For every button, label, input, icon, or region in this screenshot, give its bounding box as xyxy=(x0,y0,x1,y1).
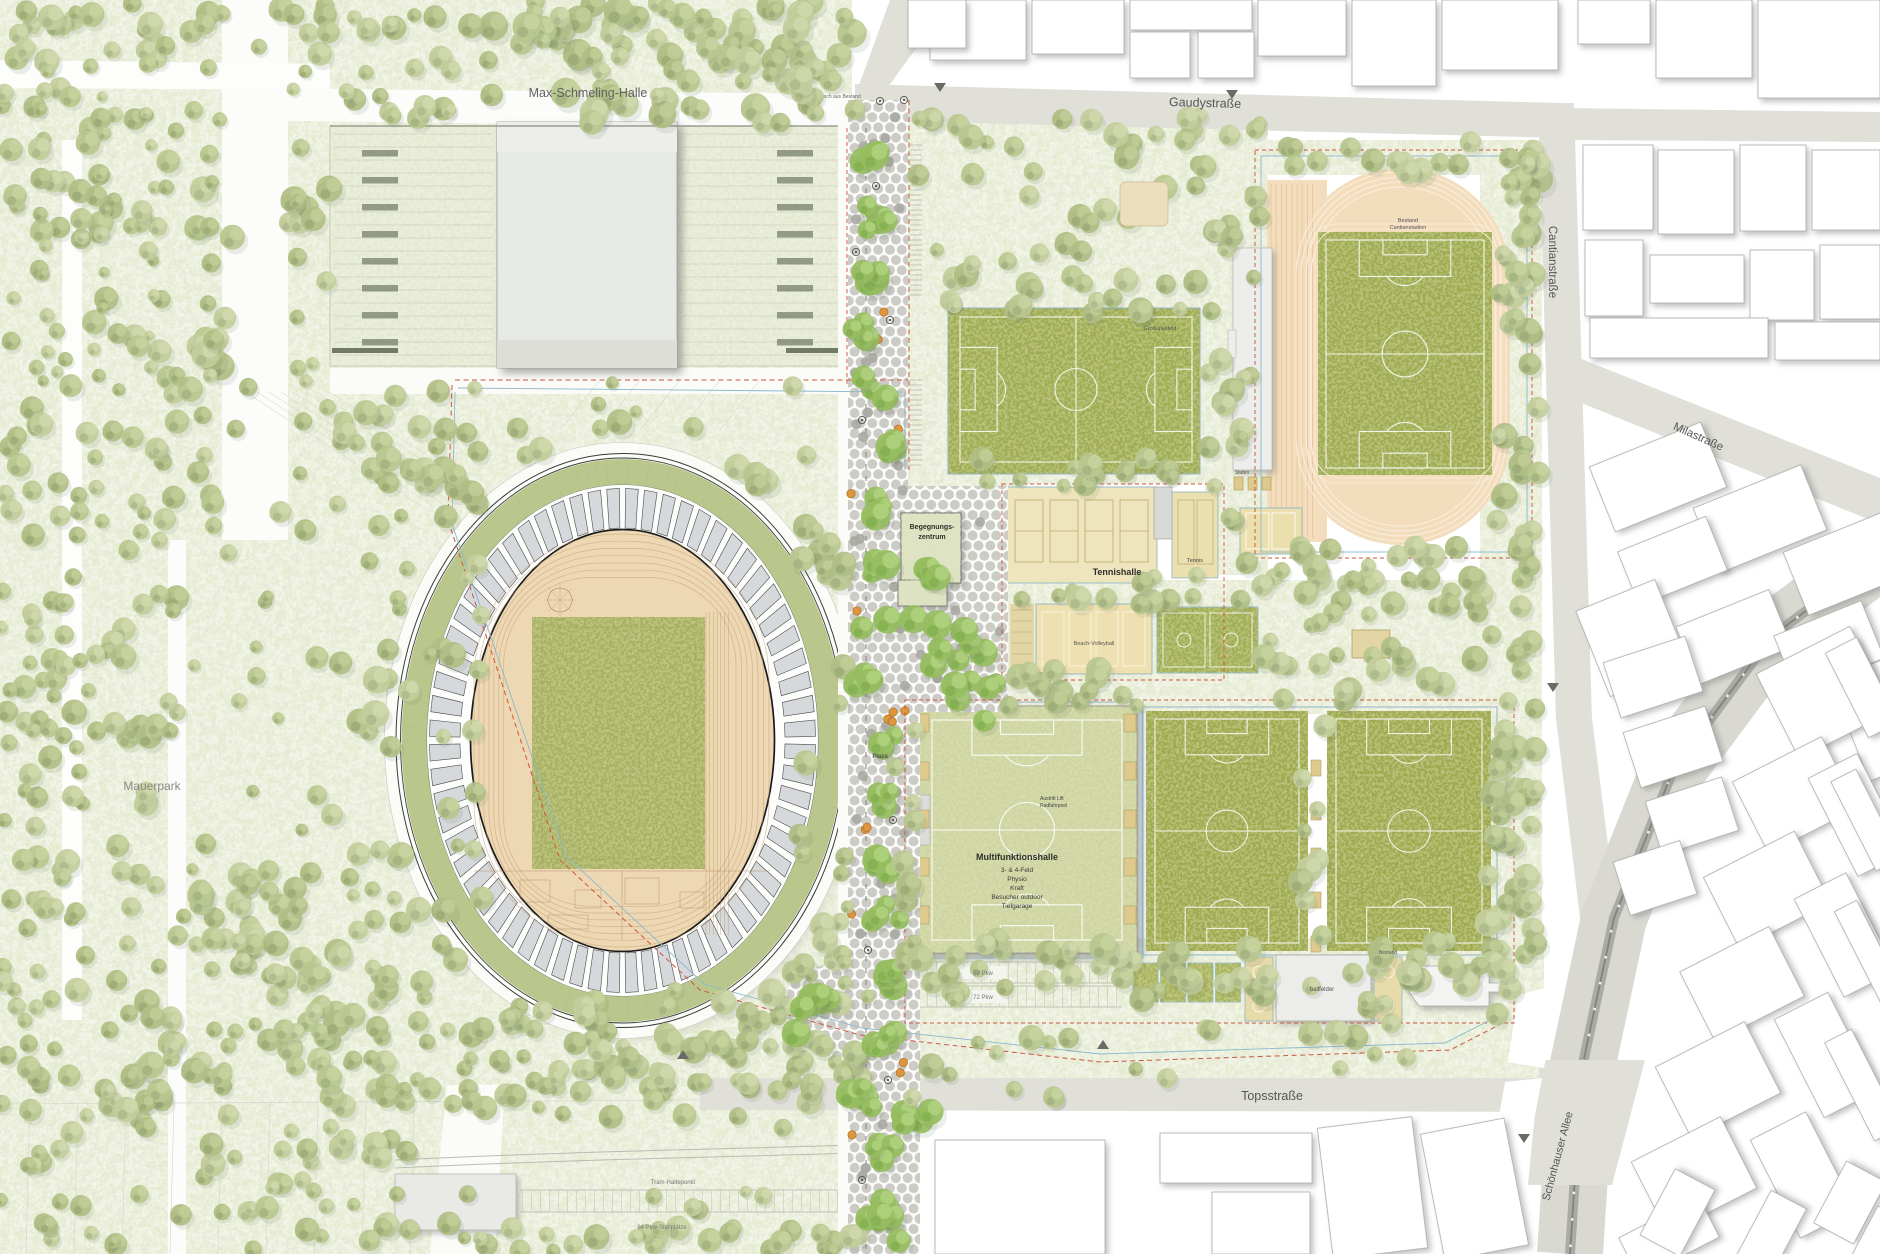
svg-text:Cantianstraße: Cantianstraße xyxy=(1546,226,1558,298)
svg-text:Tennishalle: Tennishalle xyxy=(1093,567,1142,577)
svg-text:Mauerpark: Mauerpark xyxy=(123,779,181,793)
svg-text:Bestand: Bestand xyxy=(1398,218,1418,224)
svg-text:3- & 4-Feld: 3- & 4-Feld xyxy=(1001,867,1034,874)
svg-text:Gaudystraße: Gaudystraße xyxy=(1169,95,1242,111)
svg-text:Besucher outdoor: Besucher outdoor xyxy=(991,894,1043,901)
svg-text:Beach-Volleyball: Beach-Volleyball xyxy=(1074,641,1115,647)
svg-text:Kraft: Kraft xyxy=(1010,885,1024,892)
svg-text:zentrum: zentrum xyxy=(918,534,945,541)
svg-text:Tennis: Tennis xyxy=(1187,558,1203,564)
svg-text:Plaza: Plaza xyxy=(872,754,888,760)
svg-text:Großspielfeld: Großspielfeld xyxy=(1144,326,1177,332)
svg-text:ballfelder: ballfelder xyxy=(1310,987,1334,993)
svg-text:59 Pkw: 59 Pkw xyxy=(973,971,993,977)
svg-text:Bestand: Bestand xyxy=(1379,950,1398,956)
svg-text:Tiefgarage: Tiefgarage xyxy=(1002,903,1033,910)
svg-text:Stufen: Stufen xyxy=(1235,470,1250,476)
svg-text:Max-Schmeling-Halle: Max-Schmeling-Halle xyxy=(529,86,648,100)
svg-text:Multifunktionshalle: Multifunktionshalle xyxy=(976,852,1058,862)
svg-text:Topsstraße: Topsstraße xyxy=(1241,1089,1303,1103)
svg-text:Radfahrpool: Radfahrpool xyxy=(1040,803,1067,809)
svg-text:72 Pkw: 72 Pkw xyxy=(973,995,993,1001)
svg-text:Tram-Haltepunkt: Tram-Haltepunkt xyxy=(651,1180,696,1186)
svg-text:Begegnungs-: Begegnungs- xyxy=(910,524,955,531)
svg-text:Cantianstadion: Cantianstadion xyxy=(1390,225,1427,231)
svg-text:84 Pkw-Stellplätze: 84 Pkw-Stellplätze xyxy=(637,1225,687,1231)
svg-text:Physio: Physio xyxy=(1007,876,1027,883)
svg-text:Austritt Lift: Austritt Lift xyxy=(1040,796,1064,802)
